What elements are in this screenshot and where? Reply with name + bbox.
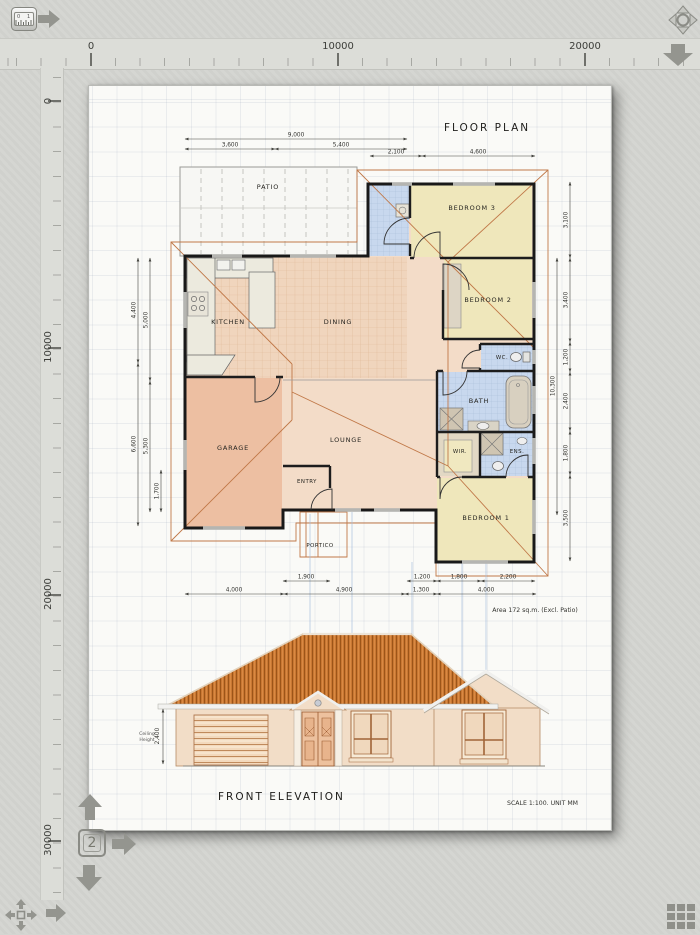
dimension-label: 2,400: [564, 392, 570, 409]
v-ruler-label-10000: 10000: [42, 317, 56, 377]
page-number-box[interactable]: 2: [78, 829, 106, 857]
dimension-label: 1,800: [564, 444, 570, 461]
h-ruler-label-10000: 10000: [322, 41, 354, 52]
page-next-button[interactable]: [111, 832, 137, 860]
dimension-label: 5,300: [144, 437, 150, 454]
dimension-label: 2,400: [155, 727, 161, 744]
dimension-label: 1,200: [564, 348, 570, 365]
dimension-label: 3,100: [564, 211, 570, 228]
room-label-bed1: BEDROOM 1: [462, 514, 509, 522]
scale-note: SCALE 1:100. UNIT MM: [507, 800, 578, 807]
horizontal-ruler: 0 10000 20000: [0, 38, 700, 70]
patio-deck: [180, 167, 357, 256]
room-label-bath: BATH: [469, 397, 489, 405]
pan-compass-icon: [666, 4, 700, 38]
v-ruler-label-20000: 20000: [42, 564, 56, 624]
pan-down-right-button[interactable]: [661, 43, 695, 71]
pan-right-button[interactable]: [37, 9, 61, 33]
page-up-button[interactable]: [77, 793, 103, 825]
cad-viewer-app: 01 0 10000 20000: [0, 0, 700, 934]
arrow-right-icon: [111, 832, 137, 856]
dimension-label: 4,900: [336, 588, 353, 594]
room-label-garage: GARAGE: [217, 444, 249, 452]
pan-compass-widget[interactable]: [666, 4, 700, 42]
room-label-portico: PORTICO: [306, 543, 333, 549]
page-down-button[interactable]: [75, 864, 103, 896]
dimension-label: 5,400: [333, 143, 350, 149]
ceiling-label: Ceiling: [139, 731, 155, 737]
drawing-svg: PATIO KITCHEN DINING GARAGE LOUNGE ENTRY…: [89, 86, 611, 830]
h-ruler-label-20000: 20000: [569, 41, 601, 52]
dimension-label: 1,700: [155, 482, 161, 499]
dimension-label: 3,400: [564, 291, 570, 308]
dimension-label: 9,000: [288, 133, 305, 139]
wing-window: [460, 710, 508, 764]
room-label-entry: ENTRY: [297, 479, 317, 485]
dimension-label: 1,200: [414, 575, 431, 581]
floor-plan-title: FLOOR PLAN: [444, 122, 530, 134]
room-label-lounge: LOUNGE: [330, 436, 362, 444]
ceiling-height-dimension: Ceiling Height 2,400: [139, 709, 163, 764]
dimensions-right: 3,100 3,400 1,200 2,400 1,800 3,500 10,3…: [551, 182, 571, 561]
elevation-roof: [166, 634, 494, 706]
dimensions-left: 4,400 5,000 6,600 5,300 1,700: [132, 258, 162, 526]
elevation-title: FRONT ELEVATION: [218, 791, 345, 803]
vertical-ruler: [40, 68, 64, 900]
dimension-label: 3,600: [222, 143, 239, 149]
arrow-up-icon: [77, 793, 103, 821]
room-label-ens: ENS.: [510, 449, 525, 455]
svg-text:0: 0: [17, 14, 20, 20]
dimension-label: 5,000: [144, 311, 150, 328]
front-elevation: Ceiling Height 2,400 FRONT ELEVATION SCA…: [139, 634, 578, 807]
pan-right-bottom-button[interactable]: [45, 902, 67, 928]
room-label-patio: PATIO: [257, 183, 279, 191]
dimension-label: 4,000: [478, 588, 495, 594]
v-ruler-label-0: 0: [42, 71, 56, 131]
ruler-tool-button[interactable]: 01: [11, 7, 37, 31]
area-note: Area 172 sq.m. (Excl. Patio): [492, 607, 578, 614]
dimensions-bottom: 1,900 1,200 1,800 2,200 4,000 4,900 1,30…: [185, 575, 536, 595]
arrow-down-icon: [661, 43, 695, 67]
thumbnail-grid-button[interactable]: [667, 904, 695, 934]
move-tool-button[interactable]: [5, 899, 37, 935]
dimension-label: 10,300: [551, 376, 557, 397]
garage-door: [194, 715, 268, 765]
dimensions-top: 9,000 3,600 5,400 2,100 4,600: [185, 133, 535, 157]
arrow-down-icon: [75, 864, 103, 892]
lounge-window: [349, 711, 393, 762]
room-label-bed3: BEDROOM 3: [448, 204, 495, 212]
floor-plan: PATIO KITCHEN DINING GARAGE LOUNGE ENTRY…: [132, 122, 578, 706]
dimension-label: 1,900: [298, 575, 315, 581]
ruler-icon: 01: [11, 7, 37, 31]
dimension-label: 2,100: [388, 150, 405, 156]
arrow-right-icon: [37, 9, 61, 29]
dimension-label: 4,000: [226, 588, 243, 594]
gable-vent: [315, 700, 321, 706]
dimension-label: 4,600: [470, 150, 487, 156]
grid-icon: [667, 904, 695, 930]
stove-icon: [188, 292, 208, 316]
room-label-wir: WIR.: [453, 449, 467, 455]
h-ruler-label-0: 0: [88, 41, 94, 52]
room-label-kitchen: KITCHEN: [211, 318, 245, 326]
room-label-bed2: BEDROOM 2: [464, 296, 511, 304]
arrow-right-icon: [45, 902, 67, 924]
dimension-label: 6,600: [132, 435, 138, 452]
ceiling-label: Height: [139, 737, 154, 743]
horizontal-ruler-ticks: [0, 58, 700, 66]
room-label-wc: WC.: [496, 355, 508, 361]
v-ruler-label-30000: 30000: [42, 810, 56, 870]
dimension-label: 4,400: [132, 301, 138, 318]
vertical-ruler-ticks: [53, 68, 61, 900]
dimension-label: 1,300: [413, 588, 430, 594]
dimension-label: 1,800: [451, 575, 468, 581]
drawing-canvas[interactable]: PATIO KITCHEN DINING GARAGE LOUNGE ENTRY…: [88, 85, 612, 831]
room-label-dining: DINING: [324, 318, 352, 326]
move-icon: [5, 899, 37, 931]
svg-text:1: 1: [27, 14, 30, 20]
page-number: 2: [88, 835, 97, 851]
dimension-label: 3,500: [564, 509, 570, 526]
dimension-label: 2,200: [500, 575, 517, 581]
